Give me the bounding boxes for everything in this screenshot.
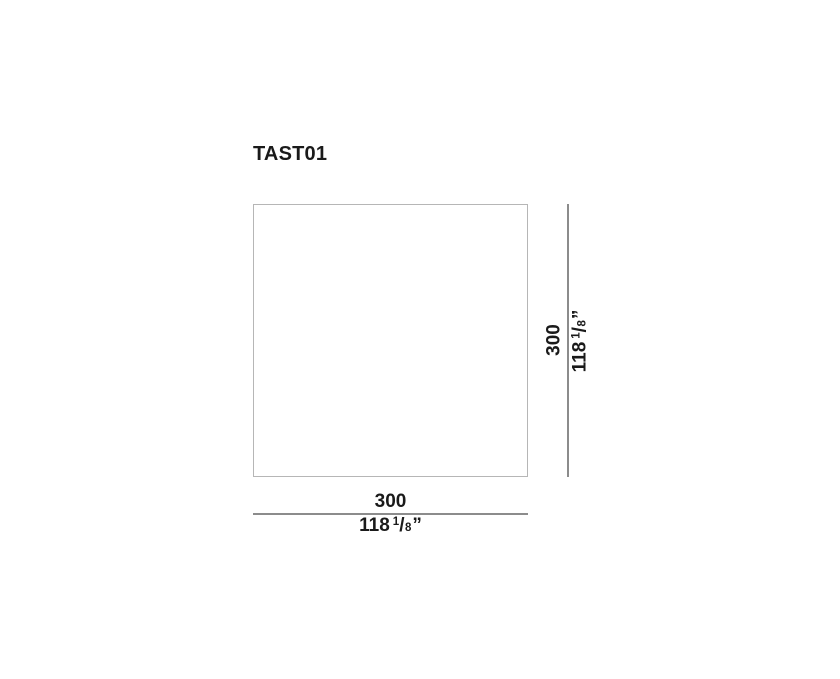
product-outline xyxy=(253,204,528,477)
width-metric-label: 300 xyxy=(253,492,528,511)
height-metric-label: 300 xyxy=(545,204,565,477)
imperial-whole: 118 xyxy=(570,342,591,373)
imperial-whole: 118 xyxy=(359,515,390,536)
height-imperial-label: 1181/8” xyxy=(570,205,592,478)
fraction-denominator: 8 xyxy=(577,320,589,326)
fraction-slash: / xyxy=(399,515,404,536)
inch-mark: ” xyxy=(570,310,591,320)
inch-mark: ” xyxy=(412,515,422,536)
width-imperial-label: 1181/8” xyxy=(253,516,528,536)
dimension-diagram: TAST01 300 1181/8” 300 1181/8” xyxy=(0,0,840,679)
width-dimension-line xyxy=(253,513,528,515)
product-code-label: TAST01 xyxy=(253,143,327,166)
fraction-denominator: 8 xyxy=(405,522,411,534)
fraction-numerator: 1 xyxy=(393,516,399,528)
fraction-numerator: 1 xyxy=(570,332,582,338)
height-dimension-line xyxy=(567,204,569,477)
